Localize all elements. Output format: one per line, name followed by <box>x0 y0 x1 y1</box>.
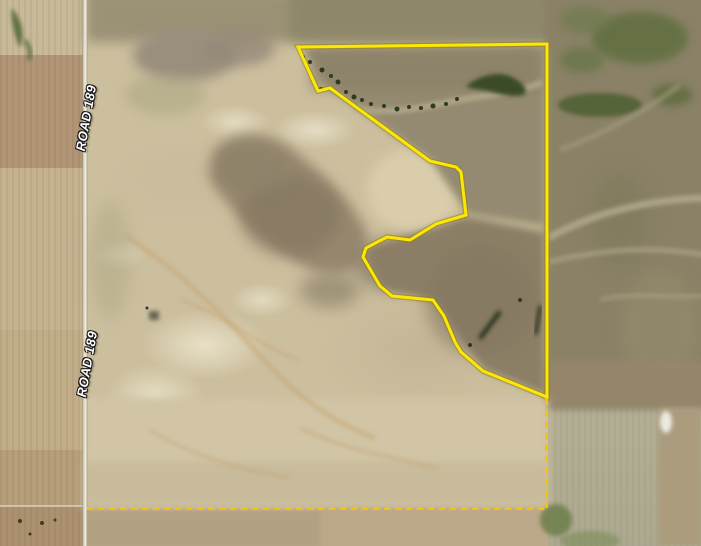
parcel-boundary-outline <box>298 44 547 397</box>
parcel-boundary-polygon[interactable] <box>298 44 547 397</box>
boundary-overlay <box>0 0 701 546</box>
map-canvas[interactable]: ROAD 189 ROAD 189 <box>0 0 701 546</box>
